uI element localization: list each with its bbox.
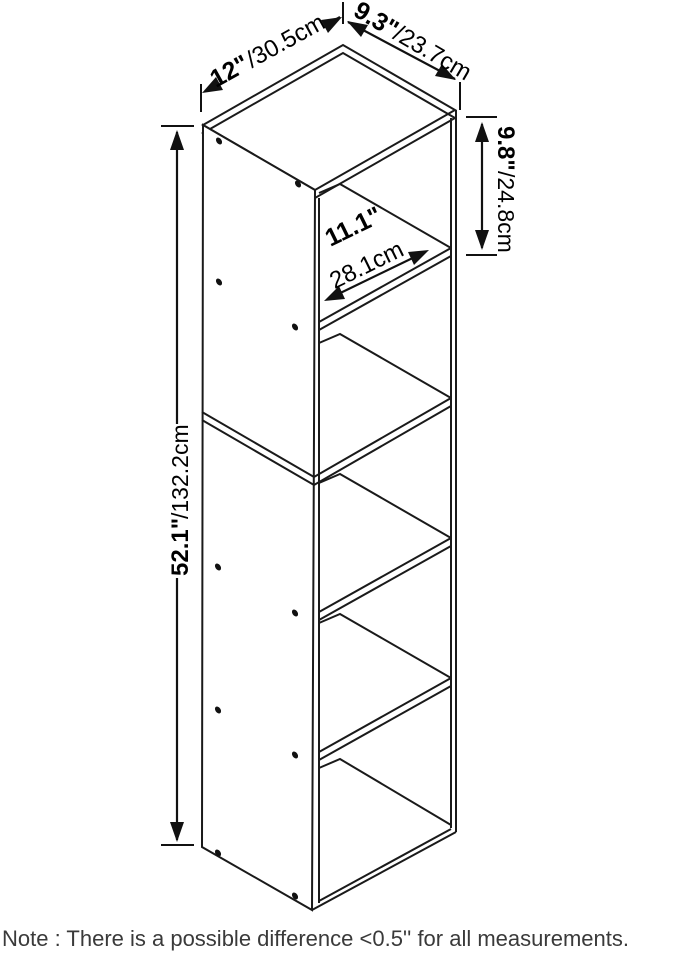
dim-compartment: 9.8" /24.8cm	[466, 117, 519, 255]
dim-height-cm: /132.2cm	[167, 424, 193, 519]
shelf-3-front-top	[319, 538, 451, 612]
bottom-front-edge	[312, 832, 456, 910]
bottom-board-front-top	[319, 829, 451, 901]
arrowhead	[475, 122, 489, 142]
shelf-4-surface	[319, 614, 451, 678]
dim-interior: 11.1" 28.1cm	[321, 201, 429, 301]
shelf-3-surface	[319, 474, 451, 538]
dim-comp-label: 9.8" /24.8cm	[492, 126, 519, 253]
dim-height: 52.1" /132.2cm	[161, 126, 194, 845]
divider-surface	[319, 334, 451, 398]
dim-comp-inches: 9.8"	[492, 126, 519, 171]
shelf-3-front-bottom	[319, 546, 451, 620]
measurement-note: Note : There is a possible difference <0…	[2, 926, 629, 951]
side-panel	[202, 125, 315, 910]
dim-depth-cm: /23.7cm	[389, 20, 476, 86]
diagram-canvas: 12" /30.5cm 9.3" /23.7cm 9.8" /24.8cm 11…	[0, 0, 679, 958]
bottom-board	[319, 759, 451, 901]
shelf-3	[319, 474, 451, 620]
bookshelf-drawing	[202, 45, 456, 910]
bookshelf-dimension-diagram: 12" /30.5cm 9.3" /23.7cm 9.8" /24.8cm 11…	[0, 0, 679, 958]
bottom-board-surface	[319, 759, 451, 825]
shelf-4-front-bottom	[319, 686, 451, 760]
dim-comp-cm: /24.8cm	[493, 171, 519, 253]
shelf-4-front-top	[319, 678, 451, 752]
shelf-4	[319, 614, 451, 760]
arrowhead	[170, 822, 184, 842]
dim-height-label: 52.1" /132.2cm	[167, 424, 194, 576]
arrowhead	[170, 130, 184, 150]
arrowhead	[475, 230, 489, 250]
dim-height-inches: 52.1"	[167, 518, 194, 576]
